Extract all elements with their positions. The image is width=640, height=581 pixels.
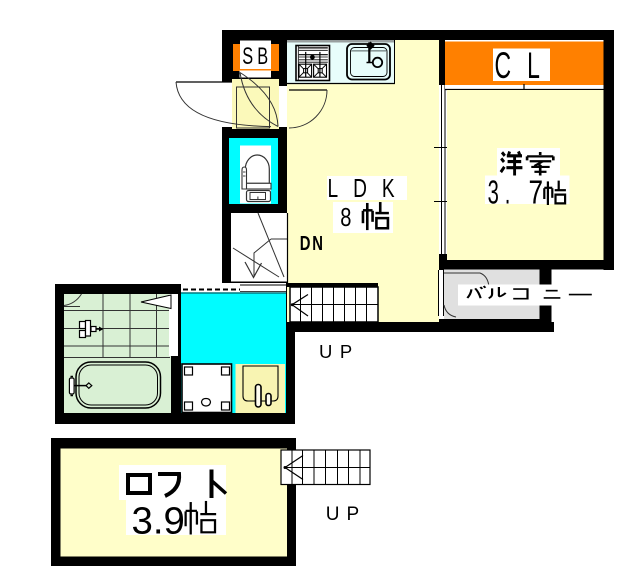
svg-text:3.: 3. — [488, 173, 517, 211]
svg-text:7: 7 — [529, 175, 544, 212]
svg-text:8: 8 — [340, 203, 351, 232]
svg-text:SB: SB — [242, 43, 272, 70]
svg-text:LDK: LDK — [328, 174, 410, 202]
svg-text:DN: DN — [300, 232, 325, 255]
svg-text:3.9: 3.9 — [132, 500, 185, 543]
svg-text:UP: UP — [326, 504, 366, 525]
svg-text:CL: CL — [495, 44, 557, 86]
svg-text:UP: UP — [319, 341, 360, 362]
